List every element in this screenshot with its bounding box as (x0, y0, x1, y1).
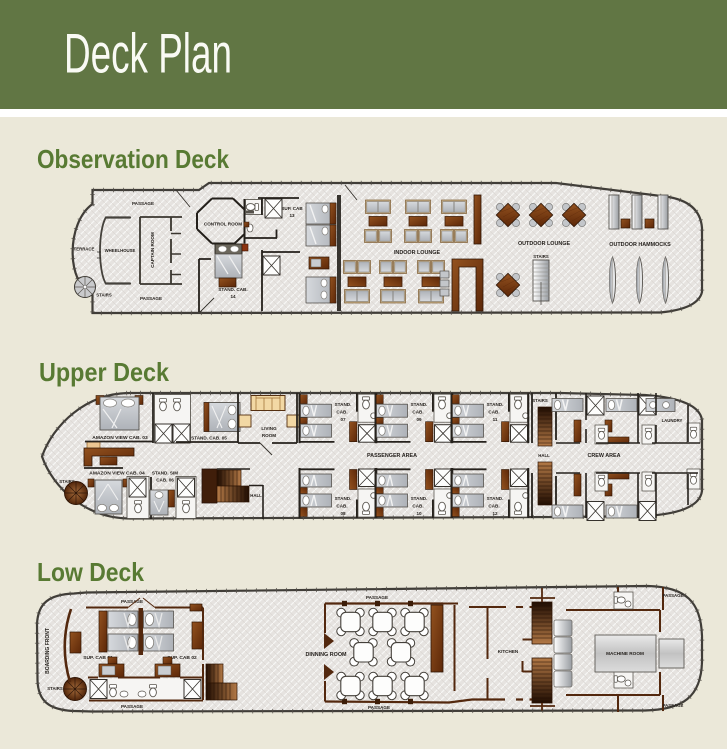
svg-text:BOARDING FRONT: BOARDING FRONT (45, 628, 51, 674)
svg-text:TERRACE: TERRACE (74, 247, 95, 252)
svg-text:CAB.: CAB. (336, 504, 347, 509)
svg-text:PASSAGE: PASSAGE (140, 296, 162, 301)
svg-text:AMAZON VIEW CAB. 04: AMAZON VIEW CAB. 04 (89, 471, 145, 477)
svg-text:PASSENGER AREA: PASSENGER AREA (367, 453, 417, 459)
svg-text:DINNING ROOM: DINNING ROOM (305, 652, 347, 658)
svg-text:STAIRS: STAIRS (532, 398, 548, 403)
svg-text:Upper Deck: Upper Deck (39, 357, 169, 387)
svg-text:STAND.: STAND. (335, 496, 352, 501)
svg-text:09: 09 (416, 417, 422, 422)
svg-text:LIVING: LIVING (261, 426, 277, 431)
svg-text:CAB.: CAB. (412, 410, 423, 415)
svg-text:INDOOR LOUNGE: INDOOR LOUNGE (394, 250, 441, 256)
svg-text:Observation Deck: Observation Deck (37, 144, 229, 174)
svg-text:HALL: HALL (250, 493, 262, 498)
svg-text:WHEELHOUSE: WHEELHOUSE (105, 248, 136, 253)
svg-text:13: 13 (289, 213, 295, 218)
svg-text:STAND.: STAND. (335, 402, 352, 407)
svg-text:08: 08 (340, 511, 346, 516)
svg-text:14: 14 (230, 294, 236, 299)
svg-text:LAUNDRY: LAUNDRY (662, 418, 683, 423)
svg-text:HALL: HALL (538, 453, 550, 458)
svg-text:PASSAGE: PASSAGE (663, 593, 684, 598)
svg-text:PASSAGE: PASSAGE (132, 201, 154, 206)
svg-text:CONTROL ROOM: CONTROL ROOM (204, 222, 242, 227)
svg-text:CREW AREA: CREW AREA (587, 453, 620, 459)
svg-text:STAIRS: STAIRS (96, 293, 112, 298)
svg-text:PASSAGE: PASSAGE (366, 595, 388, 600)
svg-text:STAND. SIM: STAND. SIM (152, 471, 178, 476)
svg-text:STAND. CAB.: STAND. CAB. (218, 287, 247, 292)
svg-text:Low Deck: Low Deck (37, 557, 144, 587)
svg-text:CAB.: CAB. (336, 410, 347, 415)
svg-text:CAB.: CAB. (412, 504, 423, 509)
svg-text:11: 11 (493, 417, 498, 422)
svg-text:SUP. CAB: SUP. CAB (281, 206, 303, 211)
svg-text:STAND.: STAND. (411, 496, 428, 501)
svg-text:STAND.: STAND. (487, 402, 504, 407)
svg-text:Deck Plan: Deck Plan (64, 22, 232, 85)
svg-text:STAIRS: STAIRS (533, 254, 549, 259)
svg-text:PASSAGE: PASSAGE (121, 704, 143, 709)
svg-text:CAB.: CAB. (488, 410, 499, 415)
svg-text:STAND.: STAND. (487, 496, 504, 501)
svg-text:MACHINE ROOM: MACHINE ROOM (606, 651, 644, 656)
svg-text:07: 07 (340, 417, 346, 422)
svg-text:OUTDOOR LOUNGE: OUTDOOR LOUNGE (518, 241, 571, 247)
svg-text:PASSAGE: PASSAGE (121, 599, 143, 604)
svg-text:STAND. CAB. 05: STAND. CAB. 05 (191, 436, 227, 441)
svg-text:AMAZON VIEW CAB. 03: AMAZON VIEW CAB. 03 (92, 435, 148, 441)
svg-text:STAIRS: STAIRS (47, 686, 63, 691)
svg-text:PASSAGE: PASSAGE (368, 705, 390, 710)
svg-text:ROOM: ROOM (262, 433, 276, 438)
svg-text:12: 12 (492, 511, 498, 516)
svg-text:PASSAGE: PASSAGE (663, 703, 684, 708)
svg-text:KITCHEN: KITCHEN (498, 649, 519, 654)
svg-text:CAPTAIN ROOM: CAPTAIN ROOM (150, 232, 155, 268)
svg-text:STAND.: STAND. (411, 402, 428, 407)
svg-text:10: 10 (416, 511, 422, 516)
svg-text:CAB. 06: CAB. 06 (156, 478, 174, 483)
svg-text:CAB.: CAB. (488, 504, 499, 509)
svg-text:OUTDOOR HAMMOCKS: OUTDOOR HAMMOCKS (609, 242, 671, 248)
